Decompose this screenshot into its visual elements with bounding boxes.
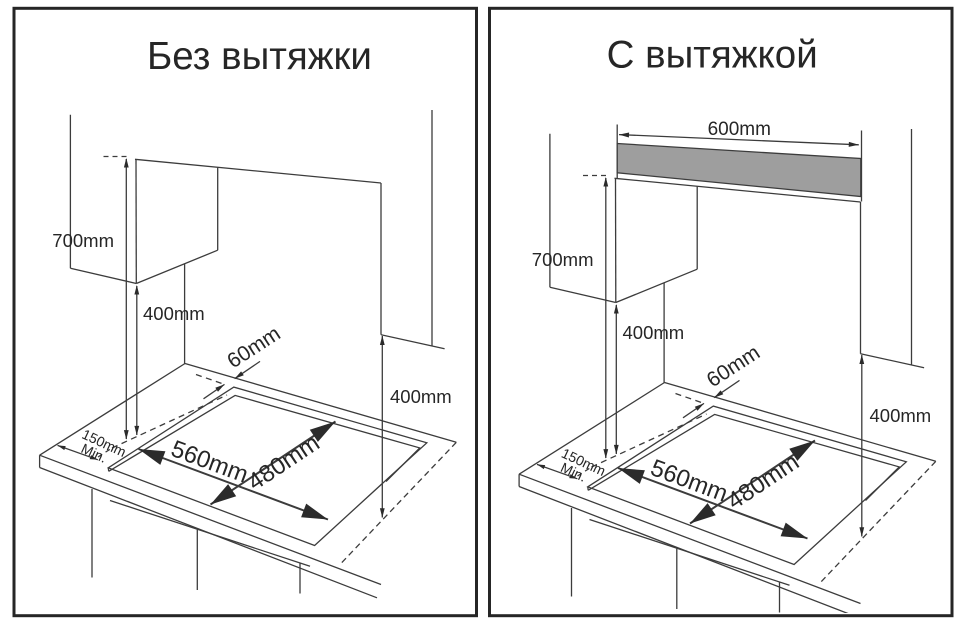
- svg-text:400mm: 400mm: [870, 405, 932, 426]
- svg-text:600mm: 600mm: [708, 119, 771, 140]
- svg-text:700mm: 700mm: [532, 249, 594, 270]
- svg-text:400mm: 400mm: [390, 386, 452, 407]
- svg-text:400mm: 400mm: [623, 322, 685, 343]
- svg-text:Без вытяжки: Без вытяжки: [147, 35, 372, 78]
- svg-text:700mm: 700mm: [52, 230, 114, 251]
- svg-text:400mm: 400mm: [143, 303, 205, 324]
- svg-text:С вытяжкой: С вытяжкой: [607, 34, 818, 77]
